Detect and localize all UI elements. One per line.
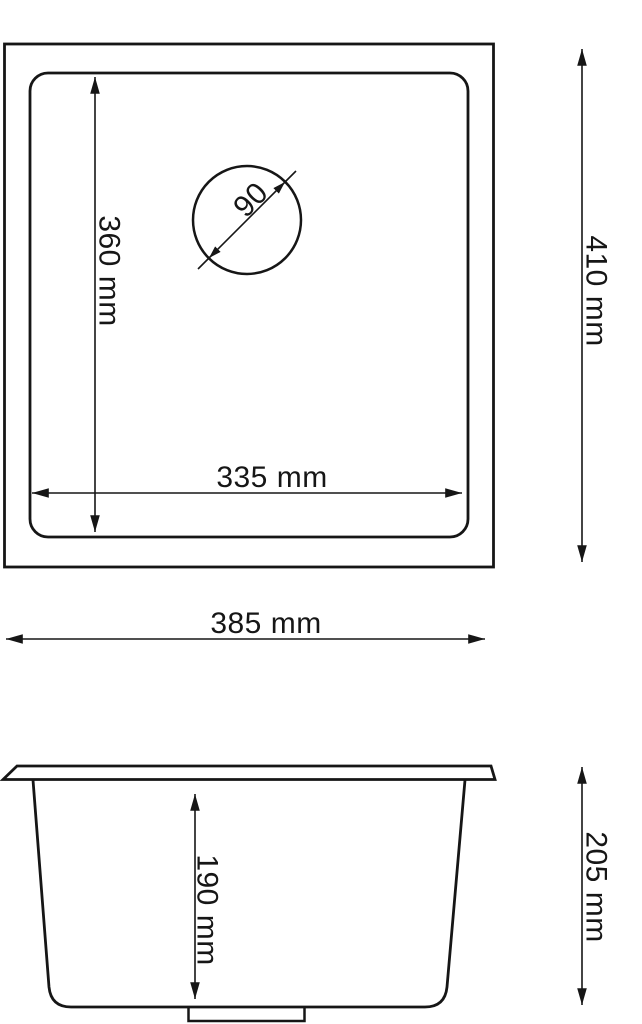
side-view-rim bbox=[3, 766, 495, 780]
drain-diameter-tail-bottom bbox=[198, 258, 209, 269]
overall-depth-dim-label: 205 mm bbox=[580, 831, 613, 942]
side-view: 190 mm 205 mm bbox=[3, 766, 613, 1021]
overall-length-dim-label: 410 mm bbox=[580, 235, 613, 346]
sink-technical-drawing: 90 360 mm 335 mm 410 mm 385 mm bbox=[0, 0, 642, 1024]
sink-drawing-svg: 90 360 mm 335 mm 410 mm 385 mm bbox=[0, 0, 642, 1024]
side-view-bowl-profile bbox=[33, 780, 465, 1007]
bowl-depth-dim-label: 190 mm bbox=[191, 854, 224, 965]
top-view: 90 360 mm 335 mm 410 mm bbox=[5, 44, 613, 567]
drain-diameter-label: 90 bbox=[227, 176, 275, 224]
bowl-length-dim-label: 360 mm bbox=[93, 215, 126, 326]
bowl-width-dim-label: 335 mm bbox=[216, 461, 327, 494]
overall-width-dimension: 385 mm bbox=[6, 607, 485, 640]
overall-width-dim-label: 385 mm bbox=[210, 607, 321, 640]
drain-diameter-tail-top bbox=[285, 171, 296, 182]
